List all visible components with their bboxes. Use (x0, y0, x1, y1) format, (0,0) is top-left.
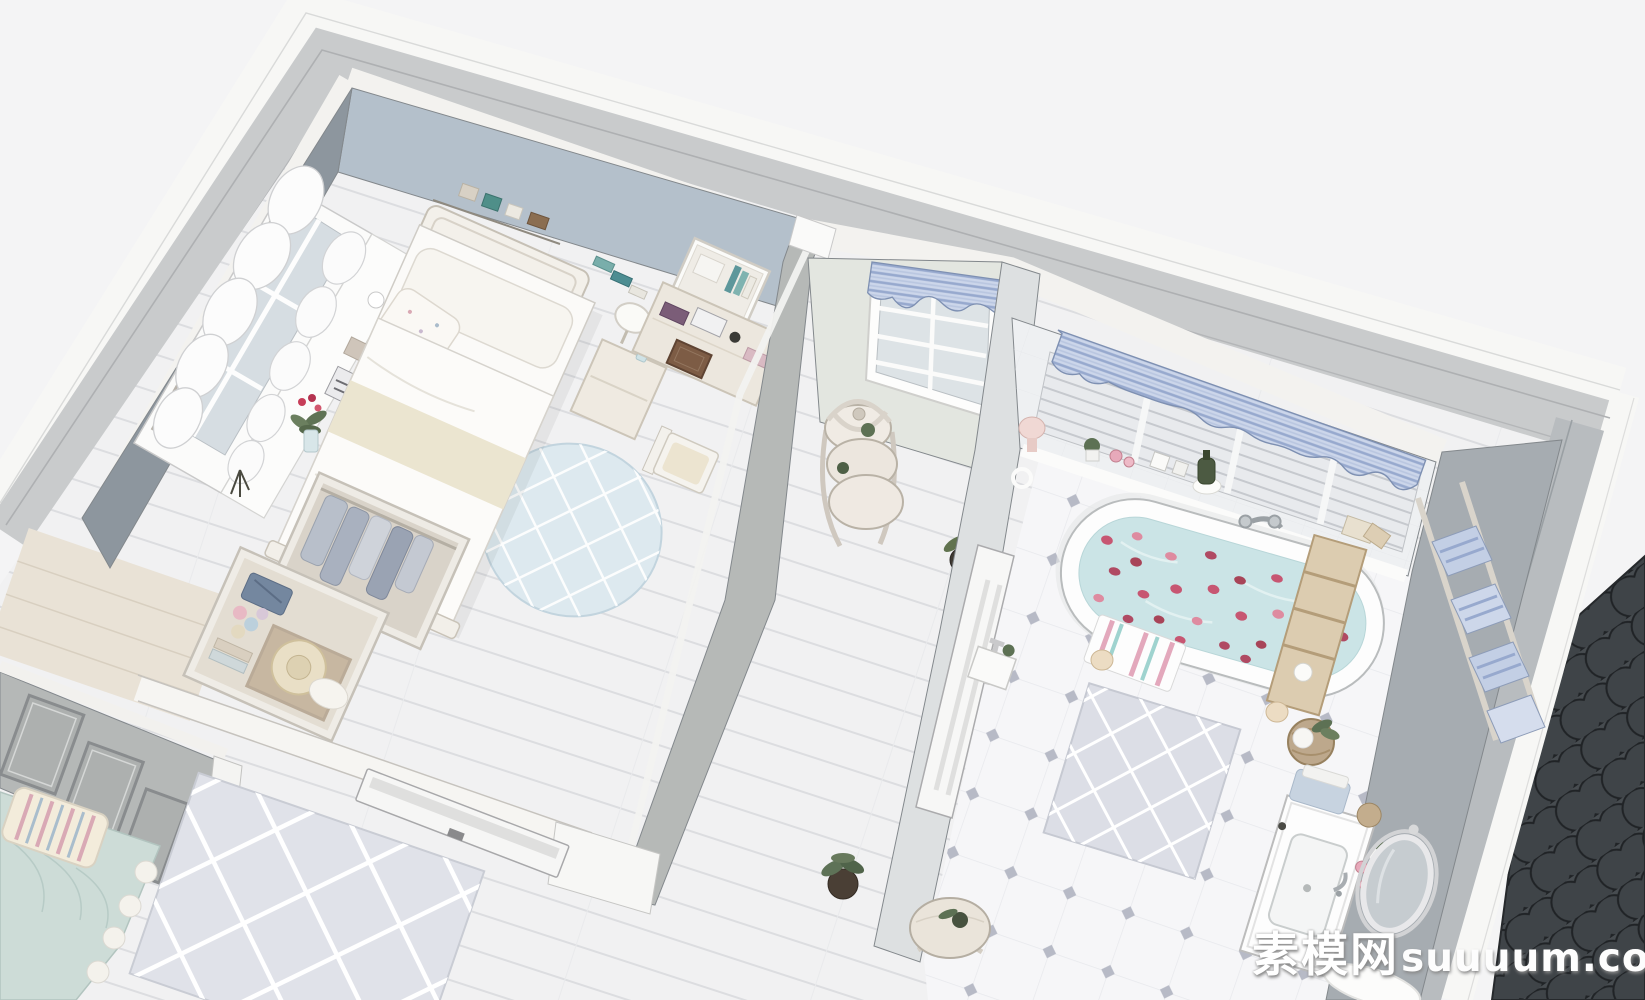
screenshot-root: 素模网suuuum.com (0, 0, 1645, 1000)
tub-foot (1266, 702, 1288, 722)
interior-render (0, 0, 1645, 1000)
pink-lamp (1019, 417, 1045, 439)
tub-foot (1091, 650, 1113, 670)
cup (368, 292, 384, 308)
stand-plant (861, 423, 875, 437)
x-leg-table (910, 898, 990, 958)
